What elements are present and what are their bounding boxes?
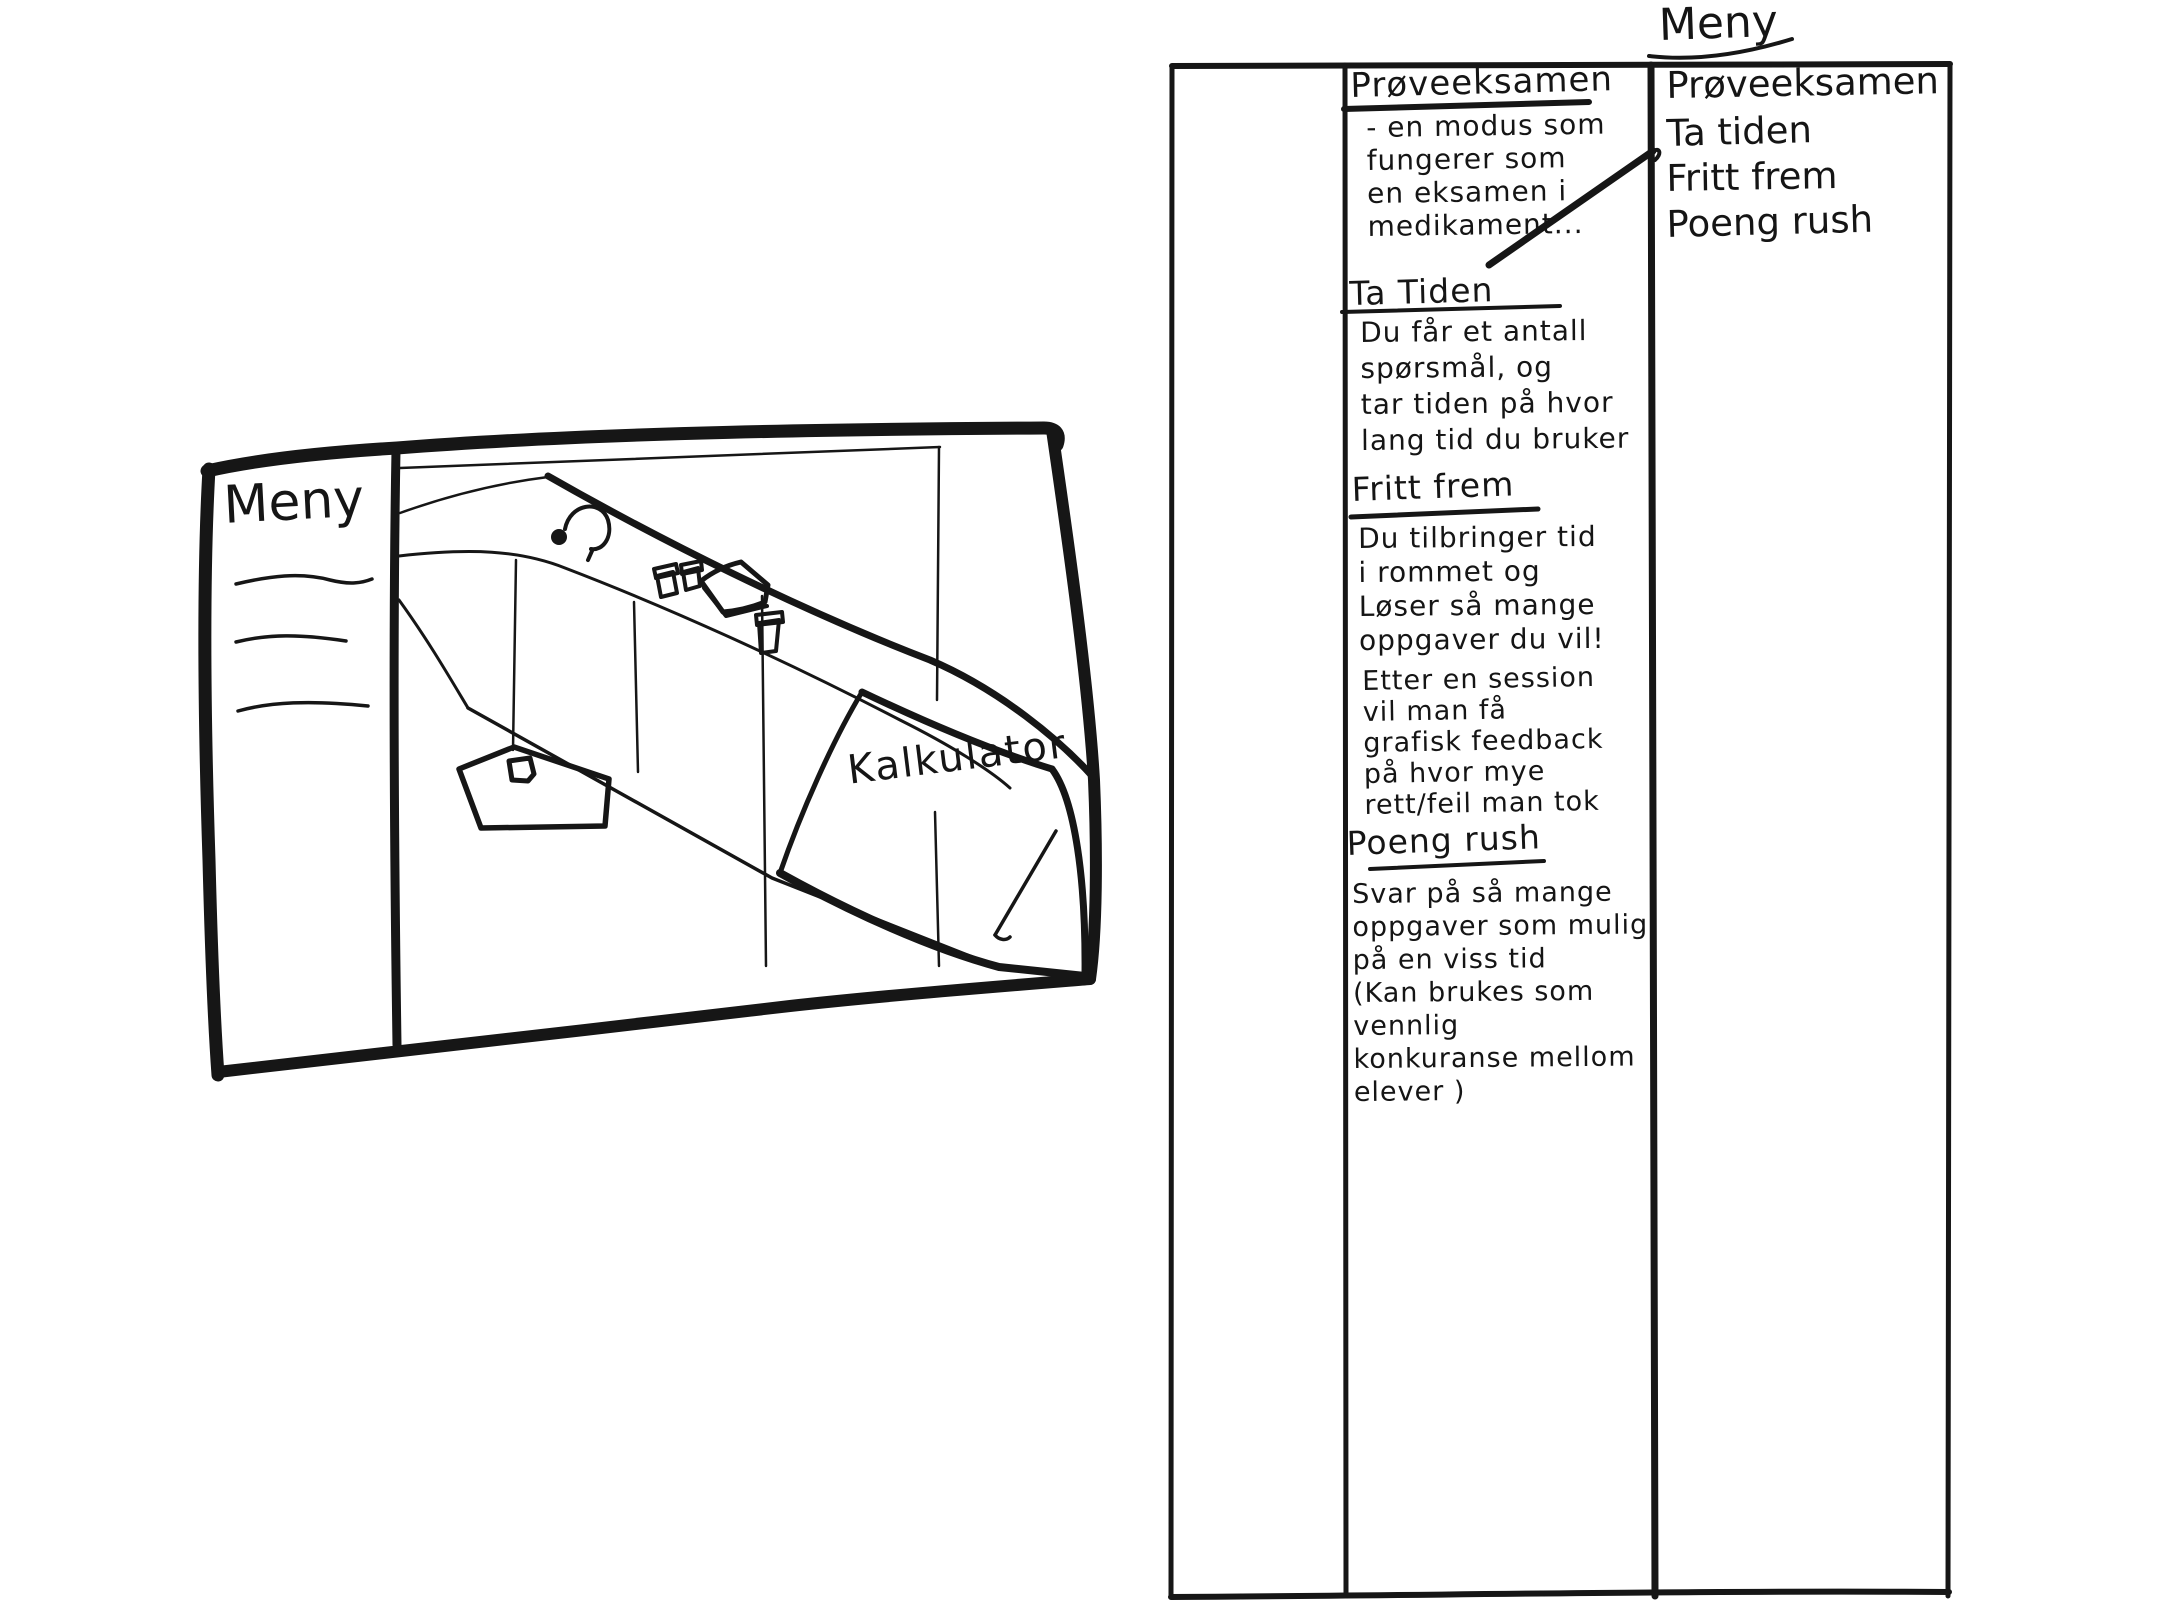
wireframe-grid — [1171, 64, 1950, 1597]
poeng-rush-underline — [1370, 861, 1544, 869]
section-body-ta-tiden: Du får et antall spørsmål, og tar tiden … — [1360, 312, 1671, 459]
section-body-poeng-rush: Svar på så mange oppgaver som mulig på e… — [1352, 875, 1674, 1109]
cup-icon — [654, 564, 678, 597]
wall-top-line — [400, 447, 940, 468]
floor-mat-icon — [459, 747, 609, 828]
fritt-frem-underline — [1351, 509, 1538, 517]
menu-item-squiggle — [236, 636, 346, 642]
section-heading-fritt-frem: Fritt frem — [1351, 464, 1515, 509]
note-pointer-line — [995, 831, 1056, 935]
menu-item-squiggle — [236, 576, 372, 584]
table-leg-line — [634, 602, 638, 772]
section-body2-fritt-frem: Etter en session vil man få grafisk feed… — [1362, 661, 1675, 821]
menu-item-poeng-rush: Poeng rush — [1666, 196, 1947, 246]
sidebar-sketch — [236, 450, 397, 1045]
section-heading-proveeksamen: Prøveeksamen — [1350, 59, 1613, 106]
section-heading-poeng-rush: Poeng rush — [1346, 817, 1541, 863]
cup-icon — [756, 612, 783, 653]
headset-icon — [551, 507, 609, 560]
sidebar-title: Meny — [222, 469, 366, 536]
sketch-strokes — [0, 0, 2160, 1620]
menu-item-fritt-frem: Fritt frem — [1666, 152, 1947, 200]
whiteboard-canvas: Meny Kalkulator Meny Prøveeksamen Ta tid… — [0, 0, 2160, 1620]
menu-item-ta-tiden: Ta tiden — [1666, 105, 1947, 155]
wireframe-menu-title: Meny — [1658, 0, 1779, 51]
menu-item-proveeksamen: Prøveeksamen — [1666, 59, 1947, 107]
floor-left-line — [399, 600, 468, 708]
cup-icon — [681, 561, 702, 590]
section-body-fritt-frem: Du tilbringer tid i rommet og Løser så m… — [1358, 519, 1669, 658]
menu-item-squiggle — [238, 703, 368, 711]
column-divider — [1651, 65, 1655, 1596]
left-wall-line — [400, 477, 548, 513]
room-scene-sketch — [399, 447, 1094, 966]
mouse-icon — [509, 758, 534, 781]
section-heading-ta-tiden: Ta Tiden — [1349, 270, 1494, 313]
section-body-proveeksamen: - en modus som fungerer som en eksamen i… — [1366, 107, 1668, 243]
sidebar-divider-stroke — [394, 450, 397, 1045]
table-leg-line — [513, 560, 516, 750]
